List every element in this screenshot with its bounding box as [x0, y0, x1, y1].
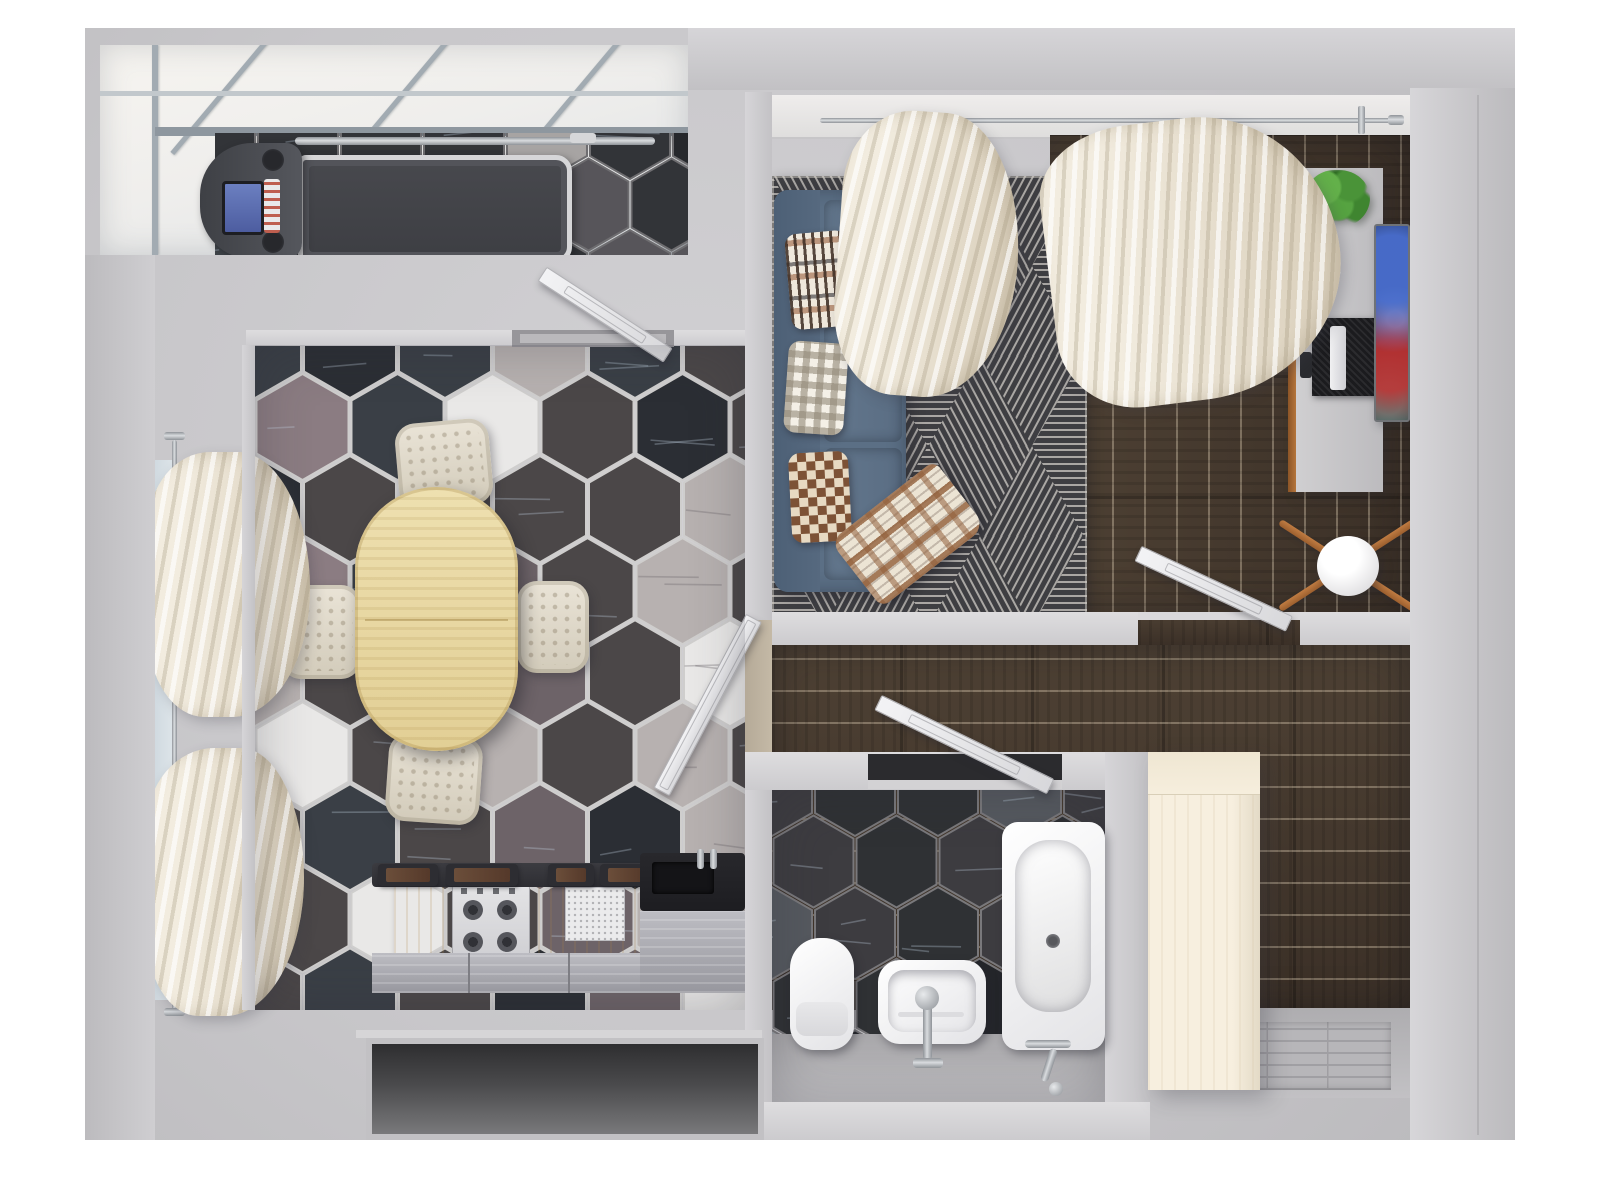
wardrobe	[1148, 752, 1260, 1090]
kitchen-window-niche	[366, 1038, 764, 1140]
basin-faucet-head	[915, 986, 939, 1010]
stove-knobs	[461, 888, 521, 894]
right-exterior-wall	[1410, 88, 1515, 1140]
counter-tray	[548, 864, 594, 886]
media-device-pad	[1312, 318, 1382, 396]
tub-faucet-bar	[1025, 1040, 1071, 1048]
curtain-rod-finial	[164, 432, 185, 440]
left-exterior-wall	[85, 255, 155, 1140]
gas-stove	[452, 885, 530, 961]
toilet-lid-band	[796, 1002, 848, 1036]
kitchen-faucet	[710, 849, 717, 869]
cabinet-seam	[468, 953, 470, 993]
bathroom-bottom-wall	[745, 1102, 1150, 1140]
stove-burner	[463, 900, 483, 920]
bathtub-basin	[1015, 840, 1091, 1012]
pillow-gingham	[783, 340, 849, 436]
window-rail	[100, 91, 688, 96]
kitchen-sink	[652, 862, 714, 894]
stove-burner	[463, 932, 483, 952]
dining-top-wall-edge	[246, 330, 752, 346]
treadmill-console	[200, 143, 302, 255]
living-hall-wall	[745, 612, 1480, 645]
console-knob	[262, 149, 284, 171]
bathtub-drain	[1046, 934, 1060, 948]
top-exterior-wall	[688, 28, 1515, 90]
kitchen-base-cabinets	[372, 953, 660, 993]
wall-bracket	[1300, 352, 1312, 378]
stove-burner	[497, 900, 517, 920]
sink-cabinet	[640, 911, 745, 993]
toilet	[790, 938, 854, 1050]
wardrobe-top-face	[1148, 752, 1260, 795]
curtain-rod-end-cap	[1388, 115, 1404, 125]
treadmill-deck	[298, 155, 572, 255]
floor-plan-stage	[0, 0, 1600, 1200]
floor-lamp-globe	[1317, 536, 1379, 596]
dining-table	[355, 487, 518, 751]
balcony	[100, 45, 688, 255]
kitchen-wall-edge	[356, 1030, 762, 1038]
rail-bracket	[570, 133, 596, 143]
cutting-board	[565, 887, 625, 941]
cabinet-seam	[568, 953, 570, 993]
dining-left-wall-edge	[242, 345, 255, 1010]
treadmill-buttons	[264, 179, 280, 233]
treadmill-rail	[295, 137, 655, 145]
bathtub	[1002, 822, 1105, 1050]
bathroom-right-wall	[1105, 752, 1150, 1140]
kitchen-faucet	[697, 849, 704, 869]
treadmill-screen	[222, 181, 264, 235]
console-knob	[262, 231, 284, 253]
pillow-checker	[788, 450, 853, 543]
counter-tray	[446, 864, 518, 886]
game-console	[1330, 326, 1346, 390]
tv	[1374, 224, 1410, 422]
curtain-rod-finial	[1358, 106, 1365, 134]
kitchen-sink-counter	[640, 853, 745, 911]
counter-tray	[378, 864, 438, 886]
dining-chair-right	[517, 581, 589, 673]
basin-faucet-base	[913, 1058, 943, 1068]
living-left-wall	[745, 92, 772, 620]
stove-burner	[497, 932, 517, 952]
dining-curtain-lower	[146, 748, 304, 1016]
bathroom	[745, 752, 1150, 1140]
tub-handle	[1049, 1082, 1063, 1096]
dining-curtain-upper	[148, 452, 310, 717]
wall-corner-seam	[1477, 95, 1479, 1135]
window-frame	[152, 45, 158, 255]
